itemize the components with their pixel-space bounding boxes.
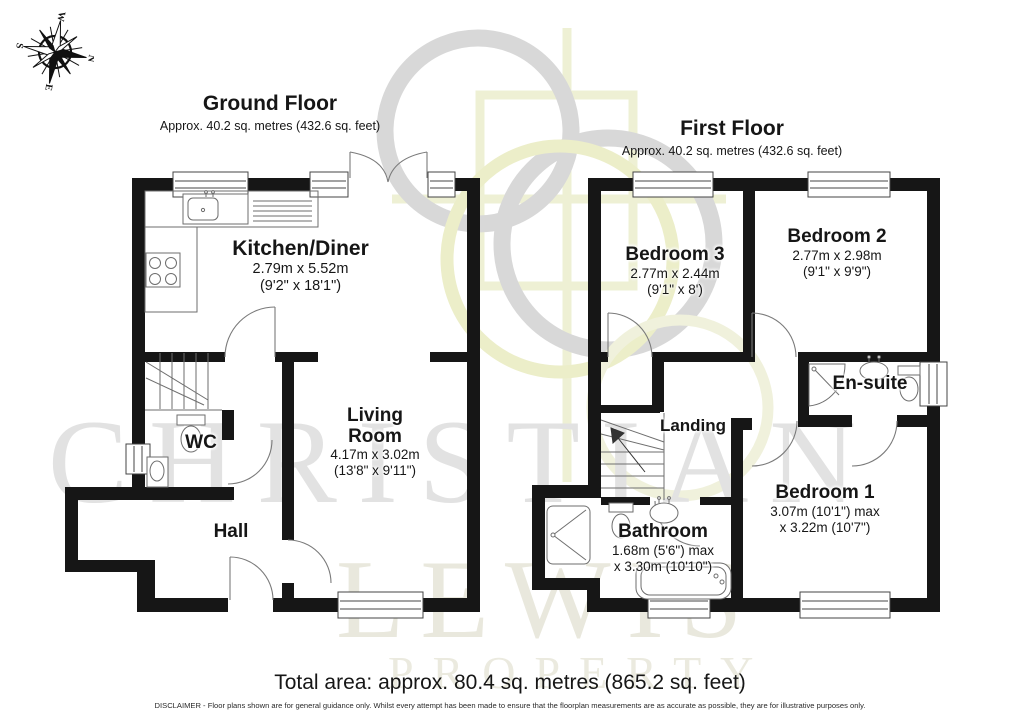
ground-floor-header: Ground Floor Approx. 40.2 sq. metres (43…: [150, 92, 390, 133]
disclaimer-text: DISCLAIMER - Floor plans shown are for g…: [0, 701, 1020, 710]
bathroom-basin: [650, 497, 678, 523]
window: [126, 444, 150, 474]
compass-rose-icon: N E S W: [16, 10, 94, 92]
window: [800, 592, 890, 618]
room-label-bedroom1: Bedroom 1 3.07m (10'1") max x 3.22m (10'…: [745, 482, 905, 536]
bedroom2-door: [752, 313, 796, 357]
ground-floor-area: Approx. 40.2 sq. metres (432.6 sq. feet): [150, 119, 390, 133]
bedroom1-door: [752, 421, 797, 466]
kitchen-door: [225, 307, 275, 357]
window: [633, 172, 713, 197]
room-label-bedroom3: Bedroom 3 2.77m x 2.44m (9'1" x 8'): [595, 244, 755, 298]
room-label-bedroom2: Bedroom 2 2.77m x 2.98m (9'1" x 9'9"): [757, 226, 917, 280]
svg-text:N: N: [85, 54, 94, 64]
room-label-bathroom: Bathroom 1.68m (5'6") max x 3.30m (10'10…: [583, 521, 743, 575]
first-floor-area: Approx. 40.2 sq. metres (432.6 sq. feet): [612, 144, 852, 158]
room-label-kitchen-diner: Kitchen/Diner 2.79m x 5.52m (9'2" x 18'1…: [208, 237, 393, 295]
room-label-ensuite: En-suite: [800, 373, 940, 395]
room-label-wc: WC: [171, 432, 231, 454]
svg-text:E: E: [42, 83, 54, 92]
window: [310, 172, 348, 197]
wc-basin: [147, 457, 168, 487]
floorplan-page: CHRISTIAN LEWIS PROPERTY N E S W: [0, 0, 1020, 719]
french-doors: [350, 152, 427, 182]
room-label-living-room: Living Room 4.17m x 3.02m (13'8" x 9'11"…: [320, 406, 430, 479]
first-floor-header: First Floor Approx. 40.2 sq. metres (432…: [612, 117, 852, 158]
kitchen-drainer: [253, 201, 312, 221]
window: [338, 592, 423, 618]
window: [173, 172, 248, 197]
room-label-landing: Landing: [633, 416, 753, 436]
bedroom3-door: [608, 313, 652, 357]
wc-door: [228, 440, 272, 484]
living-room-door: [288, 540, 331, 583]
first-floor-title: First Floor: [612, 117, 852, 141]
ground-floor-title: Ground Floor: [150, 92, 390, 116]
svg-text:W: W: [54, 11, 67, 23]
hob: [146, 253, 180, 287]
svg-text:S: S: [16, 42, 25, 50]
kitchen-sink: [183, 191, 248, 224]
ensuite-door: [852, 421, 897, 466]
window: [428, 172, 455, 197]
room-label-hall: Hall: [196, 521, 266, 543]
front-door: [230, 557, 273, 600]
window: [808, 172, 890, 197]
total-area-text: Total area: approx. 80.4 sq. metres (865…: [0, 671, 1020, 695]
